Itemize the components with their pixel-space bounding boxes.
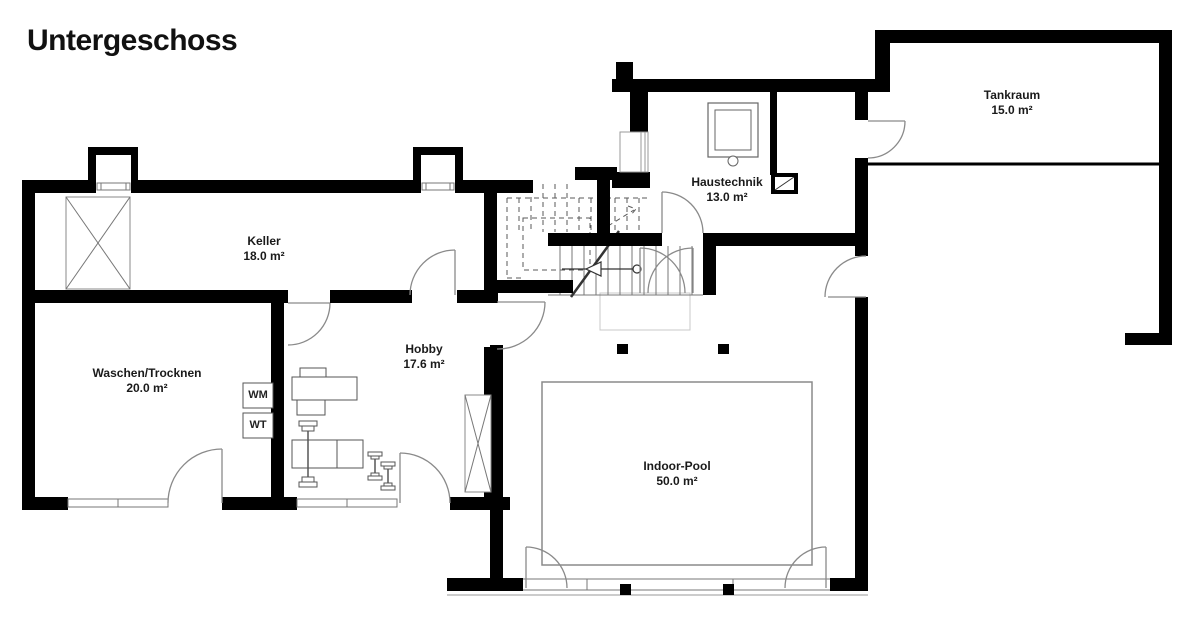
washing-machine-label: WM	[248, 389, 268, 401]
room-label-keller: Keller 18.0 m²	[243, 234, 284, 264]
lightwell-icon	[413, 147, 463, 193]
hobby-equipment	[292, 368, 395, 490]
room-label-tankraum: Tankraum 15.0 m²	[984, 88, 1040, 118]
room-label-haustechnik: Haustechnik 13.0 m²	[691, 175, 762, 205]
room-area: 17.6 m²	[403, 357, 444, 372]
room-area: 15.0 m²	[984, 103, 1040, 118]
room-label-hobby: Hobby 17.6 m²	[403, 342, 444, 372]
room-name: Waschen/Trocknen	[93, 366, 202, 381]
stair-vestibule-doors	[640, 248, 693, 293]
dumbbell-icon	[368, 452, 382, 480]
dumbbell-icon	[381, 462, 395, 490]
shaft-hatch-hobby	[465, 395, 491, 492]
boiler-icon	[708, 103, 758, 166]
room-name: Haustechnik	[691, 175, 762, 190]
room-name: Hobby	[403, 342, 444, 357]
stair-direction-arrow-icon	[562, 262, 641, 276]
stairs-upper-dashed	[507, 184, 648, 278]
shaft-hatch-keller	[66, 197, 130, 289]
room-area: 18.0 m²	[243, 249, 284, 264]
floorplan-page: Untergeschoss	[0, 0, 1200, 626]
dryer-label: WT	[249, 419, 266, 431]
lightwell-icon	[88, 147, 138, 193]
room-area: 13.0 m²	[691, 190, 762, 205]
room-name: Keller	[243, 234, 284, 249]
room-name: Indoor-Pool	[643, 459, 710, 474]
room-label-indoor-pool: Indoor-Pool 50.0 m²	[643, 459, 710, 489]
room-area: 50.0 m²	[643, 474, 710, 489]
room-label-waschen-trocknen: Waschen/Trocknen 20.0 m²	[93, 366, 202, 396]
columns	[617, 344, 729, 354]
room-name: Tankraum	[984, 88, 1040, 103]
shaft-icon	[771, 173, 798, 194]
room-area: 20.0 m²	[93, 381, 202, 396]
